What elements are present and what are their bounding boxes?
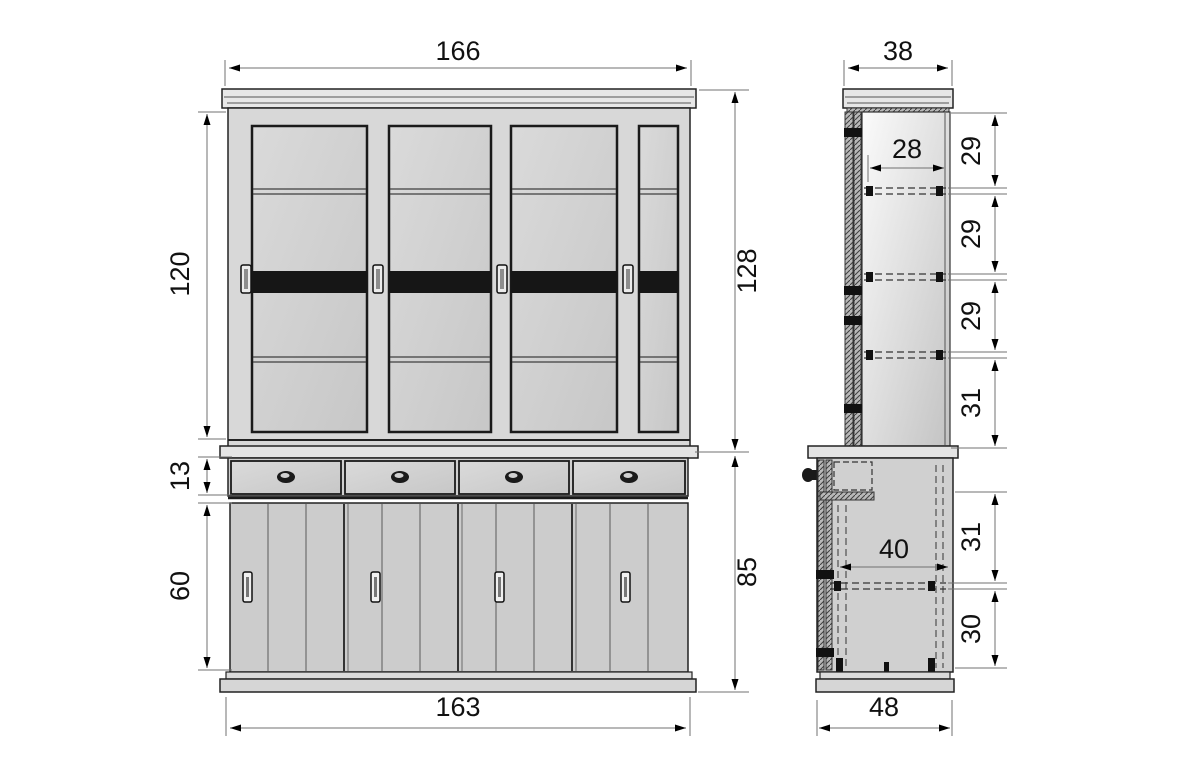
side-door-profile	[854, 112, 861, 446]
dim-label-width-top: 166	[435, 36, 480, 66]
technical-drawing: 166 163 120 13 60 128 85 38 28 40 48 29 …	[0, 0, 1200, 783]
side-lower-cabinet	[816, 458, 953, 672]
dim-label-height-lower-doors: 60	[165, 571, 195, 601]
door-handle-icon[interactable]	[243, 572, 252, 602]
door-handle-icon[interactable]	[373, 265, 383, 293]
dim-label-shelf-gap-4: 31	[956, 388, 986, 418]
door-handle-icon[interactable]	[621, 572, 630, 602]
dim-label-height-drawers: 13	[165, 461, 195, 491]
dim-label-shelf-gap-2: 29	[956, 219, 986, 249]
front-view	[220, 89, 698, 692]
dim-label-height-upper-total: 128	[732, 248, 762, 293]
side-cornice	[843, 89, 953, 108]
dim-label-depth-top: 38	[883, 36, 913, 66]
side-view	[802, 89, 958, 692]
dim-label-inner-depth-upper: 28	[892, 134, 922, 164]
dim-label-shelf-gap-3: 29	[956, 301, 986, 331]
front-drawer-row	[228, 458, 688, 496]
side-drawer-knob-icon[interactable]	[802, 468, 818, 482]
side-door-profile	[845, 112, 853, 446]
door-handle-icon[interactable]	[495, 572, 504, 602]
dim-label-height-upper-doors: 120	[165, 251, 195, 296]
dim-label-shelf-gap-1: 29	[956, 136, 986, 166]
door-handle-icon[interactable]	[371, 572, 380, 602]
dim-label-width-base: 163	[435, 692, 480, 722]
door-handle-icon[interactable]	[623, 265, 633, 293]
side-plinth	[816, 672, 954, 692]
door-handle-icon[interactable]	[497, 265, 507, 293]
side-counter-top	[808, 446, 958, 458]
dim-label-shelf-gap-6: 30	[956, 614, 986, 644]
door-handle-icon[interactable]	[241, 265, 251, 293]
front-mid-rails	[252, 271, 678, 293]
dim-label-depth-base: 48	[869, 692, 899, 722]
dim-label-height-lower-total: 85	[732, 557, 762, 587]
front-lower-cabinet	[228, 498, 688, 672]
front-upper-cabinet	[228, 108, 690, 448]
front-counter-top	[220, 446, 698, 458]
dim-label-inner-depth-lower: 40	[879, 534, 909, 564]
dim-label-shelf-gap-5: 31	[956, 522, 986, 552]
front-glass-panels	[252, 126, 678, 432]
front-cornice	[222, 89, 696, 108]
front-plinth	[220, 672, 696, 692]
drawing-canvas: 166 163 120 13 60 128 85 38 28 40 48 29 …	[0, 0, 1200, 783]
